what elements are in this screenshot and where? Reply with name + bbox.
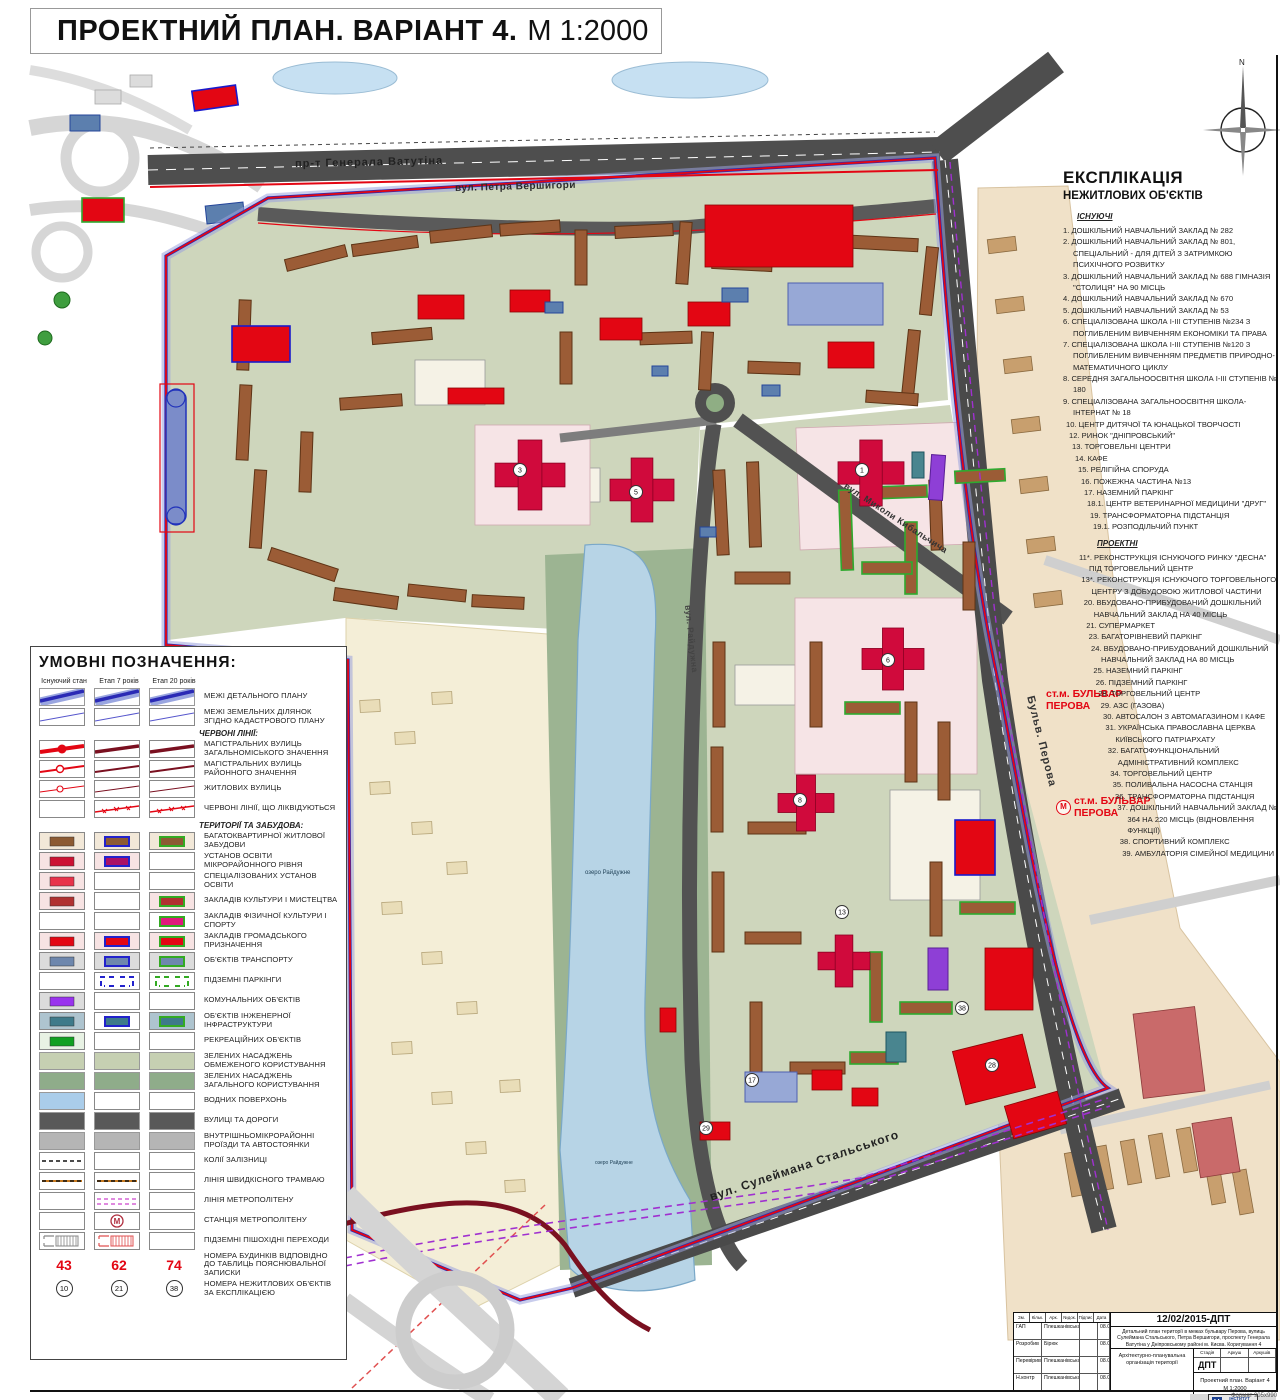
stamp-head-col: Арк. [1046, 1313, 1062, 1322]
explication-item: 15. РЕЛІГІЙНА СПОРУДА [1078, 464, 1277, 475]
legend-swatch [149, 972, 195, 990]
explication-item: 28. ТОРГОВЕЛЬНИЙ ЦЕНТР [1098, 688, 1277, 699]
legend-row-label: ЗЕЛЕНИХ НАСАДЖЕНЬ ОБМЕЖЕНОГО КОРИСТУВАНН… [204, 1052, 338, 1069]
legend-swatch [94, 1072, 140, 1090]
legend-col-stage20: Етап 20 років [149, 678, 199, 686]
stamp-cell: Н.контр [1014, 1374, 1042, 1390]
svg-text:5: 5 [634, 490, 638, 497]
legend-row: МСТАНЦІЯ МЕТРОПОЛІТЕНУ [39, 1212, 338, 1230]
legend-swatch [39, 1032, 85, 1050]
explication-item: 24. ВБУДОВАНО-ПРИБУДОВАНИЙ ДОШКІЛЬНИЙ НА… [1091, 643, 1277, 666]
legend-swatch [149, 1012, 195, 1030]
legend-swatch [149, 992, 195, 1010]
legend-swatch [94, 992, 140, 1010]
legend-swatch [149, 912, 195, 930]
legend-swatch [94, 780, 140, 798]
stamp-sheets-label: Аркушів [1249, 1349, 1276, 1357]
legend-swatch [94, 972, 140, 990]
stamp-drawing-title: Проектний план. Варіант 4 [1200, 1378, 1270, 1384]
legend-panel: УМОВНІ ПОЗНАЧЕННЯ: Існуючий стан Етап 7 … [30, 646, 347, 1360]
explication-item: 25. НАЗЕМНИЙ ПАРКІНГ [1093, 665, 1277, 676]
legend-swatch [39, 800, 85, 818]
stamp-cell [1080, 1323, 1098, 1339]
legend-row: 102138НОМЕРА НЕЖИТЛОВИХ ОБ'ЄКТІВ ЗА ЕКСП… [39, 1280, 338, 1297]
legend-swatch [94, 1232, 140, 1250]
svg-text:6: 6 [886, 658, 890, 665]
legend-row-label: ЗАКЛАДІВ ГРОМАДСЬКОГО ПРИЗНАЧЕННЯ [204, 932, 338, 949]
legend-swatch [94, 708, 140, 726]
explication-item: 37. ДОШКІЛЬНИЙ НАВЧАЛЬНИЙ ЗАКЛАД № 364 Н… [1117, 802, 1277, 836]
stamp-cell: Плешканівська [1042, 1323, 1080, 1339]
legend-title: УМОВНІ ПОЗНАЧЕННЯ: [39, 654, 338, 672]
legend-row: МЕЖІ ДЕТАЛЬНОГО ПЛАНУ [39, 688, 338, 706]
explication-item: 1. ДОШКІЛЬНИЙ НАВЧАЛЬНИЙ ЗАКЛАД № 282 [1063, 225, 1277, 236]
legend-swatch [149, 760, 195, 778]
stamp-stage-label: Стадія [1194, 1349, 1221, 1357]
stamp-cell: ГАП [1014, 1323, 1042, 1339]
legend-swatch [149, 1172, 195, 1190]
explication-item: 13*. РЕКОНСТРУКЦІЯ ІСНУЮЧОГО ТОРГОВЕЛЬНО… [1081, 574, 1277, 597]
legend-row: МЕЖІ ЗЕМЕЛЬНИХ ДІЛЯНОК ЗГІДНО КАДАСТРОВО… [39, 708, 338, 726]
legend-swatch [39, 1112, 85, 1130]
stamp-signature-row: Н.контрПлешканівська08.09.17 [1014, 1374, 1110, 1391]
explication-subtitle: НЕЖИТЛОВИХ ОБ'ЄКТІВ [1063, 190, 1277, 202]
legend-row-label: ПІДЗЕМНІ ПАРКІНГИ [204, 976, 338, 985]
legend-swatch [39, 1192, 85, 1210]
stamp-head-col: Зм. [1014, 1313, 1030, 1322]
legend-swatch [149, 740, 195, 758]
legend-row: ПІДЗЕМНІ ПІШОХІДНІ ПЕРЕХОДИ [39, 1232, 338, 1250]
plan-sheet: 351681317282938 пр-т Генерала Ватутіна в… [0, 0, 1280, 1400]
legend-swatch [39, 1072, 85, 1090]
legend-swatch [39, 1092, 85, 1110]
legend-swatch [39, 952, 85, 970]
explication-item: 13. ТОРГОВЕЛЬНІ ЦЕНТРИ [1072, 441, 1277, 452]
explication-item: 32. БАГАТОФУНКЦІОНАЛЬНИЙ АДМІНІСТРАТИВНИ… [1108, 745, 1277, 768]
stamp-signature-row: ГАППлешканівська08.09.17 [1014, 1323, 1110, 1340]
explication-title: ЕКСПЛІКАЦІЯ [1063, 168, 1277, 188]
stamp-signature-row: РозробивБірюк08.09.17 [1014, 1340, 1110, 1357]
legend-swatch [94, 1052, 140, 1070]
legend-swatch [149, 1212, 195, 1230]
sheet-title-box: ПРОЕКТНИЙ ПЛАН. ВАРІАНТ 4. М 1:2000 [30, 8, 662, 54]
legend-swatch [149, 1032, 195, 1050]
legend-swatch: М [94, 1212, 140, 1230]
legend-row: УСТАНОВ ОСВІТИ МІКРОРАЙОННОГО РІВНЯ [39, 852, 338, 870]
explication-item: 10. ЦЕНТР ДИТЯЧОЇ ТА ЮНАЦЬКОЇ ТВОРЧОСТІ [1066, 419, 1277, 430]
explication-item: 31. УКРАЇНСЬКА ПРАВОСЛАВНА ЦЕРКВА КИЇВСЬ… [1105, 722, 1277, 745]
legend-row-label: СПЕЦІАЛІЗОВАНИХ УСТАНОВ ОСВІТИ [204, 872, 338, 889]
legend-swatch [149, 688, 195, 706]
legend-swatch [39, 992, 85, 1010]
legend-row-label: ОБ'ЄКТІВ ІНЖЕНЕРНОЇ ІНФРАСТРУКТУРИ [204, 1012, 338, 1029]
stamp-sheet-label: Аркуш [1221, 1349, 1248, 1357]
legend-row: МАГІСТРАЛЬНИХ ВУЛИЦЬ ЗАГАЛЬНОМІСЬКОГО ЗН… [39, 740, 338, 758]
legend-row: ВОДНИХ ПОВЕРХОНЬ [39, 1092, 338, 1110]
legend-object-number: 10 [56, 1280, 73, 1297]
legend-row-label: СТАНЦІЯ МЕТРОПОЛІТЕНУ [204, 1216, 338, 1225]
stamp-cell: 08.09.17 [1098, 1357, 1110, 1373]
svg-text:28: 28 [988, 1063, 996, 1070]
explication-item: 38. СПОРТИВНИЙ КОМПЛЕКС [1120, 836, 1277, 847]
legend-swatch [94, 1112, 140, 1130]
explication-panel: ЕКСПЛІКАЦІЯ НЕЖИТЛОВИХ ОБ'ЄКТІВ ІСНУЮЧІ … [1063, 168, 1277, 859]
explication-item: 17. НАЗЕМНИЙ ПАРКІНГ [1084, 487, 1277, 498]
stamp-cell: Перевірив [1014, 1357, 1042, 1373]
legend-swatch [94, 932, 140, 950]
explication-item: 34. ТОРГОВЕЛЬНИЙ ЦЕНТР [1110, 768, 1277, 779]
stamp-cell: Бірюк [1042, 1340, 1080, 1356]
sheet-scale: М 1:2000 [527, 15, 648, 48]
legend-row-label: УСТАНОВ ОСВІТИ МІКРОРАЙОННОГО РІВНЯ [204, 852, 338, 869]
stamp-cell: Плешканівська [1042, 1374, 1080, 1390]
legend-swatch [149, 1152, 195, 1170]
legend-swatch [39, 1172, 85, 1190]
explication-item: 4. ДОШКІЛЬНИЙ НАВЧАЛЬНИЙ ЗАКЛАД № 670 [1063, 293, 1277, 304]
stamp-date-code: 12/02/2015-ДПТ [1111, 1313, 1276, 1327]
legend-swatch [149, 1072, 195, 1090]
legend-row: ЛІНІЯ МЕТРОПОЛІТЕНУ [39, 1192, 338, 1210]
legend-swatch [39, 852, 85, 870]
stamp-head-col: Кільк. [1030, 1313, 1046, 1322]
legend-swatch [39, 760, 85, 778]
explication-item: 16. ПОЖЕЖНА ЧАСТИНА №13 [1081, 476, 1277, 487]
legend-swatch [149, 1192, 195, 1210]
svg-text:1: 1 [860, 468, 864, 475]
explication-item: 7. СПЕЦІАЛІЗОВАНА ШКОЛА І-ІІІ СТУПЕНІВ №… [1063, 339, 1277, 373]
svg-text:М: М [114, 1217, 121, 1226]
explication-item: 6. СПЕЦІАЛІЗОВАНА ШКОЛА І-ІІІ СТУПЕНІВ №… [1063, 316, 1277, 339]
stamp-head-col: Підпис [1078, 1313, 1094, 1322]
legend-swatch [39, 872, 85, 890]
legend-row-label: БАГАТОКВАРТИРНОЇ ЖИТЛОВОЇ ЗАБУДОВИ [204, 832, 338, 849]
legend-swatch [149, 780, 195, 798]
legend-row: ОБ'ЄКТІВ ІНЖЕНЕРНОЇ ІНФРАСТРУКТУРИ [39, 1012, 338, 1030]
legend-row: КОМУНАЛЬНИХ ОБ'ЄКТІВ [39, 992, 338, 1010]
explication-item: 39. АМБУЛАТОРІЯ СІМЕЙНОЇ МЕДИЦИНИ [1122, 848, 1277, 859]
legend-row-label: КОМУНАЛЬНИХ ОБ'ЄКТІВ [204, 996, 338, 1005]
legend-swatch [39, 912, 85, 930]
svg-text:17: 17 [748, 1078, 756, 1085]
svg-text:38: 38 [958, 1006, 966, 1013]
legend-swatch [39, 1232, 85, 1250]
legend-swatch [39, 740, 85, 758]
legend-row-label: ЧЕРВОНІ ЛІНІЇ, ЩО ЛІКВІДУЮТЬСЯ [204, 804, 338, 813]
sheet-frame-right [1276, 55, 1278, 1392]
legend-swatch [94, 832, 140, 850]
legend-row: ЗАКЛАДІВ ФІЗИЧНОЇ КУЛЬТУРИ І СПОРТУ [39, 912, 338, 930]
legend-row: ЛІНІЯ ШВИДКІСНОГО ТРАМВАЮ [39, 1172, 338, 1190]
legend-swatch [94, 1132, 140, 1150]
compass-rose: N [1195, 58, 1280, 178]
legend-swatch [94, 1172, 140, 1190]
legend-swatch [94, 852, 140, 870]
legend-row: ЗЕЛЕНИХ НАСАДЖЕНЬ ОБМЕЖЕНОГО КОРИСТУВАНН… [39, 1052, 338, 1070]
legend-swatch [94, 892, 140, 910]
legend-row-label: МАГІСТРАЛЬНИХ ВУЛИЦЬ ЗАГАЛЬНОМІСЬКОГО ЗН… [204, 740, 338, 757]
stamp-head-col: Дата [1094, 1313, 1110, 1322]
legend-row-label: РЕКРЕАЦІЙНИХ ОБ'ЄКТІВ [204, 1036, 338, 1045]
explication-item: 35. ПОЛИВАЛЬНА НАСОСНА СТАНЦІЯ [1113, 779, 1277, 790]
stamp-cell [1080, 1374, 1098, 1390]
explication-item: 2. ДОШКІЛЬНИЙ НАВЧАЛЬНИЙ ЗАКЛАД № 801, С… [1063, 236, 1277, 270]
legend-swatch [39, 1212, 85, 1230]
legend-swatch [39, 932, 85, 950]
explication-item: 36. ТРАНСФОРМАТОРНА ПІДСТАНЦІЯ [1115, 791, 1277, 802]
legend-swatch [149, 872, 195, 890]
lake-label-2: озеро Райдужне [595, 1160, 633, 1166]
legend-row: 436274НОМЕРА БУДИНКІВ ВІДПОВІДНО ДО ТАБЛ… [39, 1252, 338, 1278]
format-note: Формат 905х990 [1150, 1393, 1277, 1399]
legend-row: ЗЕЛЕНИХ НАСАДЖЕНЬ ЗАГАЛЬНОГО КОРИСТУВАНН… [39, 1072, 338, 1090]
legend-row-label: МАГІСТРАЛЬНИХ ВУЛИЦЬ РАЙОННОГО ЗНАЧЕННЯ [204, 760, 338, 777]
legend-swatch [149, 932, 195, 950]
legend-row-label: ВНУТРІШНЬОМІКРОРАЙОННІ ПРОЇЗДИ ТА АВТОСТ… [204, 1132, 338, 1149]
svg-text:29: 29 [702, 1126, 710, 1133]
explication-item: 12. РИНОК "ДНІПРОВСЬКИЙ" [1069, 430, 1277, 441]
stamp-subject: Архітектурно-планувальна організація тер… [1111, 1349, 1194, 1394]
explication-section-projected: ПРОЕКТНІ [1097, 539, 1277, 548]
legend-swatch [149, 1092, 195, 1110]
legend-row-label: ВУЛИЦІ ТА ДОРОГИ [204, 1116, 338, 1125]
explication-item: 19.1. РОЗПОДІЛЬЧИЙ ПУНКТ [1093, 521, 1277, 532]
legend-swatch [149, 832, 195, 850]
legend-swatch [94, 800, 140, 818]
legend-swatch [94, 1012, 140, 1030]
legend-swatch [149, 708, 195, 726]
legend-row: ВНУТРІШНЬОМІКРОРАЙОННІ ПРОЇЗДИ ТА АВТОСТ… [39, 1132, 338, 1150]
sheet-title: ПРОЕКТНИЙ ПЛАН. ВАРІАНТ 4. [57, 15, 517, 48]
legend-swatch [94, 1152, 140, 1170]
stamp-description: Детальний план території в межах бульвар… [1111, 1327, 1276, 1349]
explication-item: 26. ПІДЗЕМНИЙ ПАРКІНГ [1096, 677, 1277, 688]
stamp-cell: 08.09.17 [1098, 1323, 1110, 1339]
title-block-signatures: Зм.Кільк.Арк.№док.ПідписДата ГАППлешкані… [1014, 1313, 1111, 1391]
legend-row: ЧЕРВОНІ ЛІНІЇ, ЩО ЛІКВІДУЮТЬСЯ [39, 800, 338, 818]
legend-row-label: ЛІНІЯ ШВИДКІСНОГО ТРАМВАЮ [204, 1176, 338, 1185]
legend-row-label: ОБ'ЄКТІВ ТРАНСПОРТУ [204, 956, 338, 965]
legend-swatch [39, 1132, 85, 1150]
legend-swatch [39, 1012, 85, 1030]
svg-text:8: 8 [798, 798, 802, 805]
legend-swatch [94, 872, 140, 890]
legend-house-number: 43 [39, 1257, 89, 1273]
explication-section-existing: ІСНУЮЧІ [1077, 212, 1277, 221]
legend-row: БАГАТОКВАРТИРНОЇ ЖИТЛОВОЇ ЗАБУДОВИ [39, 832, 338, 850]
legend-object-number: 21 [111, 1280, 128, 1297]
stamp-signature-row: ПеревіривПлешканівська08.09.17 [1014, 1357, 1110, 1374]
stamp-head-col: №док. [1062, 1313, 1078, 1322]
explication-item: 9. СПЕЦІАЛІЗОВАНА ЗАГАЛЬНООСВІТНЯ ШКОЛА-… [1063, 396, 1277, 419]
legend-house-number: 62 [94, 1257, 144, 1273]
legend-swatch [149, 800, 195, 818]
stamp-stage-value: ДПТ [1194, 1358, 1221, 1372]
explication-item: 21. СУПЕРМАРКЕТ [1086, 620, 1277, 631]
stamp-cell: 08.09.17 [1098, 1340, 1110, 1356]
svg-text:3: 3 [518, 468, 522, 475]
legend-swatch [94, 1032, 140, 1050]
explication-item: 23. БАГАТОРІВНЕВИЙ ПАРКІНГ [1089, 631, 1277, 642]
legend-row-label: ЖИТЛОВИХ ВУЛИЦЬ [204, 784, 338, 793]
explication-item: 30. АВТОСАЛОН З АВТОМАГАЗИНОМ І КАФЕ [1103, 711, 1277, 722]
legend-row: СПЕЦІАЛІЗОВАНИХ УСТАНОВ ОСВІТИ [39, 872, 338, 890]
stamp-cell: Розробив [1014, 1340, 1042, 1356]
legend-swatch [94, 688, 140, 706]
legend-row-label: ЗАКЛАДІВ ФІЗИЧНОЇ КУЛЬТУРИ І СПОРТУ [204, 912, 338, 929]
explication-item: 18.1. ЦЕНТР ВЕТЕРИНАРНОЇ МЕДИЦИНИ "ДРУГ" [1087, 498, 1277, 509]
legend-object-number: 38 [166, 1280, 183, 1297]
legend-swatch [94, 952, 140, 970]
compass-north-label: N [1239, 58, 1245, 67]
legend-swatch [149, 1052, 195, 1070]
legend-row: ВУЛИЦІ ТА ДОРОГИ [39, 1112, 338, 1130]
stamp-cell: Плешканівська [1042, 1357, 1080, 1373]
legend-row-label: ЗАКЛАДІВ КУЛЬТУРИ І МИСТЕЦТВА [204, 896, 338, 905]
legend-row: ЗАКЛАДІВ КУЛЬТУРИ І МИСТЕЦТВА [39, 892, 338, 910]
stamp-cell: 08.09.17 [1098, 1374, 1110, 1390]
legend-row-label: НОМЕРА БУДИНКІВ ВІДПОВІДНО ДО ТАБЛИЦЬ ПО… [204, 1252, 338, 1278]
legend-section-header: ЧЕРВОНІ ЛІНІЇ: [39, 729, 338, 738]
svg-text:13: 13 [838, 910, 846, 917]
legend-swatch [149, 1112, 195, 1130]
legend-col-stage7: Етап 7 років [94, 678, 144, 686]
title-block: Зм.Кільк.Арк.№док.ПідписДата ГАППлешкані… [1013, 1312, 1277, 1392]
legend-section-header: ТЕРИТОРІЇ ТА ЗАБУДОВА: [39, 821, 338, 830]
explication-item: 5. ДОШКІЛЬНИЙ НАВЧАЛЬНИЙ ЗАКЛАД № 53 [1063, 305, 1277, 316]
legend-row-label: МЕЖІ ЗЕМЕЛЬНИХ ДІЛЯНОК ЗГІДНО КАДАСТРОВО… [204, 708, 338, 725]
legend-row: ЖИТЛОВИХ ВУЛИЦЬ [39, 780, 338, 798]
legend-row-label: КОЛІЇ ЗАЛІЗНИЦІ [204, 1156, 338, 1165]
explication-item: 3. ДОШКІЛЬНИЙ НАВЧАЛЬНИЙ ЗАКЛАД № 688 ГІ… [1063, 271, 1277, 294]
legend-swatch [94, 760, 140, 778]
legend-row-label: МЕЖІ ДЕТАЛЬНОГО ПЛАНУ [204, 692, 338, 701]
legend-swatch [39, 780, 85, 798]
legend-swatch [39, 708, 85, 726]
explication-item: 20. ВБУДОВАНО-ПРИБУДОВАНИЙ ДОШКІЛЬНИЙ НА… [1084, 597, 1277, 620]
legend-row: МАГІСТРАЛЬНИХ ВУЛИЦЬ РАЙОННОГО ЗНАЧЕННЯ [39, 760, 338, 778]
stamp-cell [1080, 1340, 1098, 1356]
lake-label: озеро Райдужне [585, 870, 630, 876]
legend-row: КОЛІЇ ЗАЛІЗНИЦІ [39, 1152, 338, 1170]
legend-swatch [94, 912, 140, 930]
legend-swatch [149, 852, 195, 870]
explication-item: 14. КАФЕ [1075, 453, 1277, 464]
legend-row-label: НОМЕРА НЕЖИТЛОВИХ ОБ'ЄКТІВ ЗА ЕКСПЛІКАЦІ… [204, 1280, 338, 1297]
legend-row-label: ЗЕЛЕНИХ НАСАДЖЕНЬ ЗАГАЛЬНОГО КОРИСТУВАНН… [204, 1072, 338, 1089]
legend-row-label: ЛІНІЯ МЕТРОПОЛІТЕНУ [204, 1196, 338, 1205]
legend-row-label: ПІДЗЕМНІ ПІШОХІДНІ ПЕРЕХОДИ [204, 1236, 338, 1245]
legend-swatch [39, 1152, 85, 1170]
legend-row: РЕКРЕАЦІЙНИХ ОБ'ЄКТІВ [39, 1032, 338, 1050]
legend-row-label: ВОДНИХ ПОВЕРХОНЬ [204, 1096, 338, 1105]
explication-item: 29. АЗС (ГАЗОВА) [1101, 700, 1277, 711]
explication-item: 11*. РЕКОНСТРУКЦІЯ ІСНУЮЧОГО РИНКУ "ДЕСН… [1079, 552, 1277, 575]
legend-swatch [39, 892, 85, 910]
legend-swatch [39, 832, 85, 850]
legend-house-number: 74 [149, 1257, 199, 1273]
stamp-cell [1080, 1357, 1098, 1373]
legend-row: ЗАКЛАДІВ ГРОМАДСЬКОГО ПРИЗНАЧЕННЯ [39, 932, 338, 950]
explication-item: 19. ТРАНСФОРМАТОРНА ПІДСТАНЦІЯ [1090, 510, 1277, 521]
legend-column-headers: Існуючий стан Етап 7 років Етап 20 років [39, 678, 338, 686]
legend-swatch [94, 1192, 140, 1210]
legend-row: ОБ'ЄКТІВ ТРАНСПОРТУ [39, 952, 338, 970]
legend-swatch [149, 892, 195, 910]
legend-swatch [39, 1052, 85, 1070]
legend-swatch [149, 1132, 195, 1150]
legend-swatch [149, 1232, 195, 1250]
legend-swatch [94, 1092, 140, 1110]
sheet-frame-bottom [30, 1390, 1278, 1392]
legend-swatch [149, 952, 195, 970]
legend-swatch [94, 740, 140, 758]
explication-item: 8. СЕРЕДНЯ ЗАГАЛЬНООСВІТНЯ ШКОЛА І-ІІІ С… [1063, 373, 1277, 396]
legend-swatch [39, 688, 85, 706]
legend-col-existing: Існуючий стан [39, 678, 89, 686]
legend-row: ПІДЗЕМНІ ПАРКІНГИ [39, 972, 338, 990]
legend-swatch [39, 972, 85, 990]
